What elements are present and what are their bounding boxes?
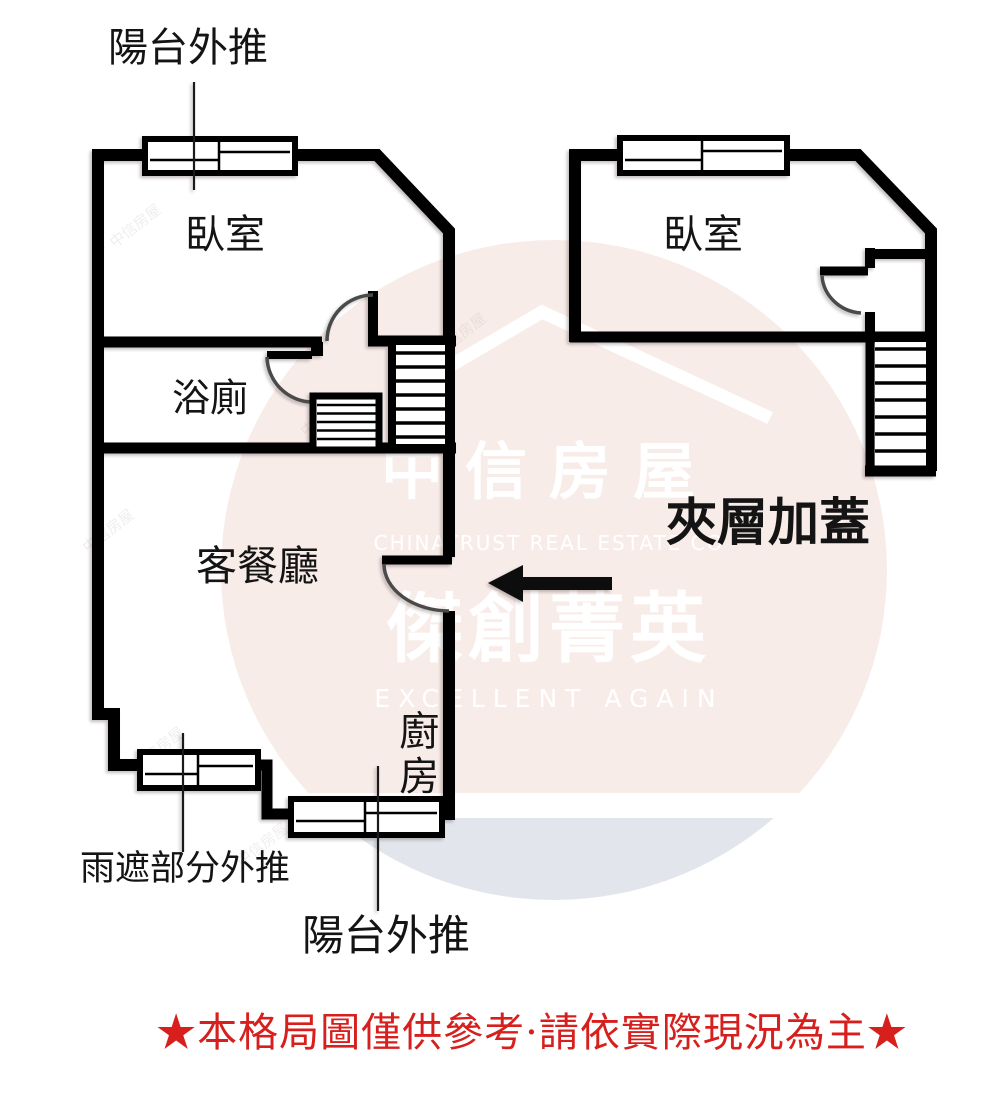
room-label-bathroom: 浴廁 <box>172 378 248 419</box>
wall-left-top <box>575 155 621 342</box>
door-swing-icon-right <box>820 271 868 313</box>
annotation-rain-shelter-push: 雨遮部分外推 <box>80 851 290 889</box>
window-icon-top-right <box>620 138 787 173</box>
disclaimer-text: ★本格局圖僅供參考·請依實際現況為主★ <box>156 1000 908 1058</box>
stair-treads <box>875 349 926 451</box>
stair-treads <box>396 353 445 437</box>
window-icon-top-left <box>145 139 295 173</box>
wall-bottom-step <box>258 765 293 814</box>
bath-door-arc <box>267 357 312 402</box>
room-label-living-dining: 客餐廳 <box>196 544 319 588</box>
annotation-balcony-push-bottom: 陽台外推 <box>302 913 470 958</box>
window-icon-rain-shelter <box>140 752 258 788</box>
wall-left-outline <box>98 149 145 765</box>
annotation-mezzanine-note: 夾層加蓋 <box>666 496 870 551</box>
bedroom-door-arc <box>327 295 373 341</box>
stairs-icon-left-small <box>313 396 379 450</box>
window-icon-balcony-bottom <box>291 799 442 835</box>
annotation-balcony-push-top: 陽台外推 <box>108 27 268 70</box>
stairs-fill <box>875 342 926 466</box>
entry-door-arc <box>384 564 449 611</box>
door-arc <box>822 276 861 313</box>
arrow-left-icon <box>488 565 612 602</box>
stairs-icon-right <box>865 342 936 471</box>
floorplan-page: 中信房屋 CHINATRUST REAL ESTATE CO 傑創菁英 EXCE… <box>0 0 1000 1116</box>
stairs-icon-left-main <box>392 341 445 448</box>
floorplan-drawing <box>0 0 1000 1116</box>
room-label-bedroom-left: 臥室 <box>185 214 265 257</box>
room-label-kitchen: 廚房 <box>393 710 436 800</box>
room-label-bedroom-right: 臥室 <box>663 214 743 257</box>
